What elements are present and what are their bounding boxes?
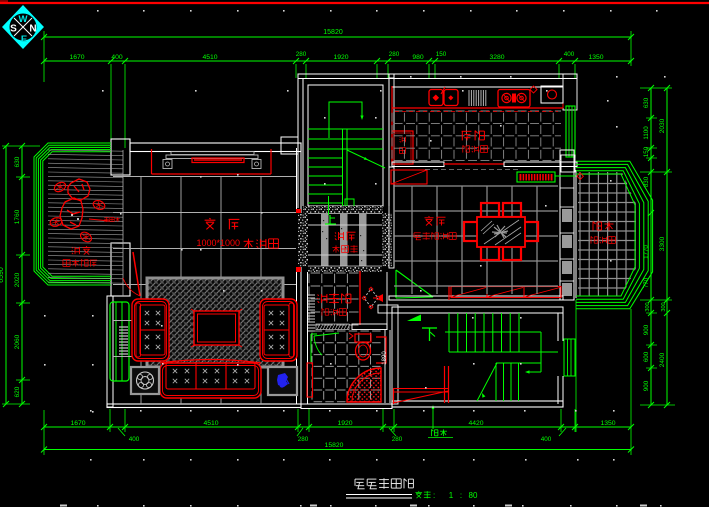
svg-text:1670: 1670	[70, 420, 85, 427]
svg-text:400: 400	[541, 436, 552, 443]
svg-text:N: N	[29, 24, 36, 35]
svg-text:280: 280	[298, 436, 309, 443]
svg-text:4510: 4510	[202, 54, 217, 61]
svg-text:900: 900	[643, 380, 650, 391]
svg-text:80: 80	[469, 491, 478, 500]
svg-text:6590: 6590	[0, 267, 5, 283]
svg-text:15820: 15820	[325, 442, 344, 449]
svg-text:2030: 2030	[659, 118, 666, 133]
svg-text:3280: 3280	[489, 54, 504, 61]
svg-text:1890: 1890	[382, 351, 388, 365]
svg-text:630: 630	[14, 156, 21, 167]
svg-text:1350: 1350	[600, 420, 615, 427]
svg-text:900: 900	[643, 324, 650, 335]
svg-text:1100: 1100	[643, 126, 650, 140]
svg-text:300: 300	[645, 302, 651, 311]
svg-text:620: 620	[14, 386, 21, 397]
svg-text:400: 400	[111, 54, 123, 61]
svg-text:W: W	[19, 14, 28, 25]
svg-text:S: S	[10, 24, 17, 35]
svg-text:400: 400	[129, 436, 140, 443]
svg-text:400: 400	[564, 51, 575, 58]
svg-text:3300: 3300	[659, 236, 666, 251]
svg-text:1000*1000: 1000*1000	[196, 238, 240, 248]
svg-text:1760: 1760	[14, 209, 21, 224]
svg-text:280: 280	[392, 436, 403, 443]
svg-text:300: 300	[661, 302, 667, 311]
svg-text:150: 150	[436, 51, 447, 58]
svg-text:2400: 2400	[659, 352, 666, 367]
svg-text:280: 280	[296, 51, 307, 58]
svg-text:4420: 4420	[468, 420, 483, 427]
svg-text:1350: 1350	[588, 54, 603, 61]
svg-text::: :	[460, 491, 462, 500]
svg-text:1: 1	[449, 491, 454, 500]
svg-text:4510: 4510	[203, 420, 218, 427]
svg-text:1920: 1920	[337, 420, 352, 427]
svg-text:630: 630	[643, 97, 650, 108]
svg-text:2060: 2060	[14, 334, 21, 349]
svg-text:1670: 1670	[69, 54, 84, 61]
svg-text:1920: 1920	[333, 54, 348, 61]
svg-text:980: 980	[412, 54, 424, 61]
svg-text:E: E	[21, 34, 27, 45]
svg-text:280: 280	[389, 51, 400, 58]
svg-text:15820: 15820	[323, 29, 343, 36]
svg-text:600: 600	[643, 351, 650, 362]
svg-text:2020: 2020	[14, 272, 21, 287]
svg-text::: :	[433, 491, 435, 500]
